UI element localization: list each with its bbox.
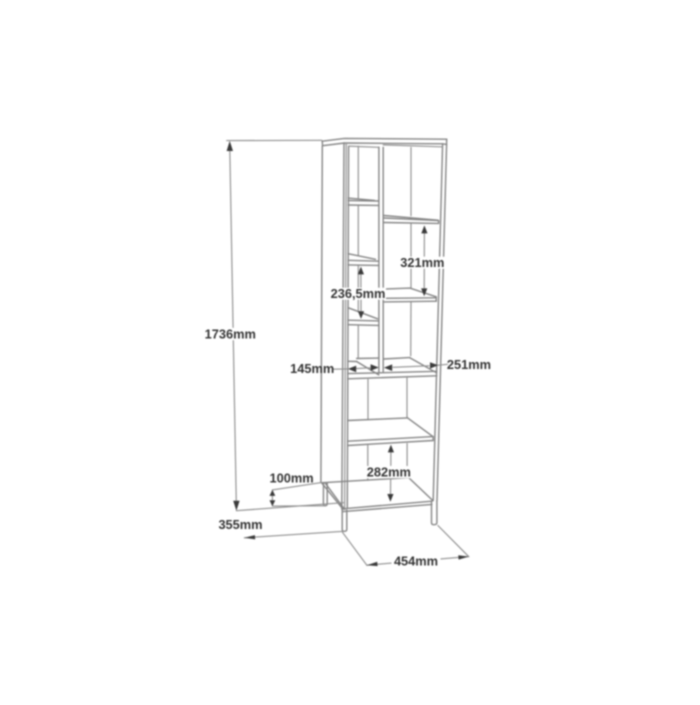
svg-text:251mm: 251mm	[447, 357, 491, 372]
svg-text:145mm: 145mm	[290, 361, 334, 376]
svg-text:100mm: 100mm	[270, 471, 314, 486]
svg-text:1736mm: 1736mm	[205, 326, 256, 341]
svg-text:321mm: 321mm	[400, 255, 444, 270]
svg-text:236,5mm: 236,5mm	[331, 286, 386, 301]
svg-text:282mm: 282mm	[367, 465, 411, 480]
svg-text:355mm: 355mm	[218, 517, 262, 532]
svg-text:454mm: 454mm	[394, 554, 438, 569]
